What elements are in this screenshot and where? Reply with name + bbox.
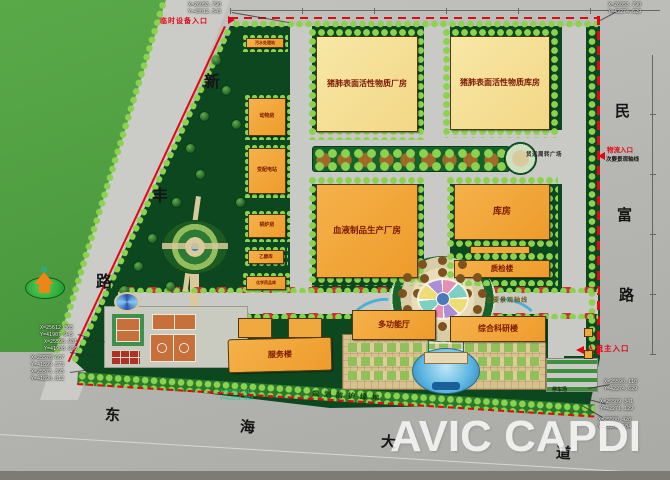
- building-service: 服务楼: [228, 337, 333, 374]
- basketball-courts: [150, 334, 196, 362]
- tree: [134, 262, 143, 271]
- building-surfactant-plant-block: 猪肺表面活性物质厂房: [308, 28, 426, 140]
- coord-west-2: X=25598.981Y=41908.956: [44, 339, 77, 352]
- watermark: AVIC CAPDI: [390, 412, 641, 462]
- building-sewage-station: 污水处理站: [246, 38, 284, 48]
- dimension-line-top: [230, 8, 660, 14]
- tree: [166, 282, 175, 291]
- building-boiler-block: 锅炉房: [244, 210, 290, 242]
- building-surfactant-warehouse: 猪肺表面活性物质库房: [450, 36, 550, 130]
- coord-west-4: X=25573.395Y=41898.812: [31, 369, 64, 382]
- coord-east-1: X=25590.110Y=42274.629: [604, 379, 637, 392]
- building-qc-block: 质检楼: [446, 252, 558, 286]
- red-courts: [112, 350, 140, 364]
- building-chemical-storage: 化学药品库: [246, 276, 286, 290]
- reflecting-pool: [432, 382, 460, 390]
- road-name-donghai-char: 东: [104, 404, 120, 426]
- road-name-xinfeng-char: 路: [96, 268, 112, 292]
- bush-row-site-east-edge: [588, 28, 596, 354]
- coord-east-2: X=25509.341Y=42271.129: [600, 399, 633, 412]
- tree: [232, 120, 241, 129]
- volleyball-courts: [152, 314, 196, 330]
- road-name-minfu-char: 富: [617, 204, 632, 225]
- landscape-strip-cap: [504, 142, 537, 175]
- building-warehouse: 库房: [454, 184, 550, 240]
- building-blood-products-plant: 血液制品生产厂房: [316, 184, 418, 278]
- garden-cross-path: [162, 243, 228, 249]
- gatehouse: [584, 328, 593, 337]
- road-name-minfu-char: 路: [619, 284, 634, 305]
- building-qc: 质检楼: [454, 260, 550, 278]
- dimension-line-right: [650, 55, 656, 355]
- main-axis-label: 主要景观轴线: [486, 295, 528, 304]
- building-warehouse-block: 库房: [446, 176, 558, 248]
- road-name-xinfeng-char: 丰: [152, 182, 168, 206]
- spiral-garden: [114, 292, 140, 312]
- pedestrian-entrance-arrow-icon: [576, 346, 584, 354]
- freight-plaza-label: 货运周转广场: [526, 150, 562, 158]
- building-sewage-block: 污水处理站: [242, 34, 288, 52]
- building-surfactant-warehouse-block: 猪肺表面活性物质库房: [442, 28, 558, 138]
- building-ethanol-block: 乙醇库: [244, 246, 288, 268]
- building-substation-block: 变配电站: [244, 144, 290, 198]
- coord-west-1: X=25612.365Y=41907.945: [40, 325, 73, 338]
- temp-equipment-entrance-label: 临时设备入口: [160, 16, 208, 26]
- tree: [148, 234, 157, 243]
- tree: [196, 170, 205, 179]
- coord-west-3: X=25576.667Y=41899.573: [31, 355, 64, 368]
- building-blood-plant-block: 血液制品生产厂房: [308, 176, 426, 286]
- building-ethanol-storage: 乙醇库: [248, 250, 284, 264]
- logistics-entrance-label: 物流入口: [607, 144, 633, 154]
- tree: [212, 56, 221, 65]
- road-name-xinfeng-char: 新: [204, 68, 220, 92]
- building-chemical-block: 化学药品库: [242, 272, 290, 294]
- tree: [236, 198, 245, 207]
- secondary-axis-label: 次要景观轴线: [606, 155, 639, 163]
- service-building-wing-east: [288, 318, 322, 338]
- tree: [172, 198, 181, 207]
- building-multifunction-hall: 多功能厅: [352, 310, 436, 340]
- site-master-plan: 规划防护绿地 猪肺表面活性物质厂房 猪肺表面活性物质库房 血液制品生产厂房 库房…: [0, 0, 670, 480]
- boundary-red-dashed-top: [230, 17, 598, 19]
- logistics-entrance-arrow-icon: [598, 152, 605, 160]
- building-surfactant-plant: 猪肺表面活性物质厂房: [316, 36, 418, 132]
- coord-top-right: X=26053.790Y=42274.629: [608, 2, 641, 15]
- pedestrian-main-entrance-label: 人流主入口: [587, 343, 630, 354]
- building-boiler-room: 锅炉房: [248, 214, 286, 238]
- tennis-court-surface: [116, 318, 140, 342]
- parking-label: 停车场: [552, 386, 567, 393]
- road-name-minfu-char: 民: [615, 100, 630, 121]
- building-animal-house: 动物房: [248, 98, 286, 136]
- coord-top-left: X=26053.790Y=43012.543: [188, 2, 221, 15]
- frame-bottom-edge: [0, 471, 670, 480]
- building-animal-block: 动物房: [244, 94, 290, 140]
- road-name-donghai-char: 海: [239, 416, 255, 438]
- temp-equipment-entrance-arrow-icon: [228, 16, 235, 24]
- north-arrow-stem: [39, 284, 50, 293]
- tree: [222, 86, 231, 95]
- plaza-center-pool: [436, 292, 450, 306]
- axis-bush-row-north: [118, 287, 598, 293]
- fountain-stage: [424, 352, 468, 364]
- north-arrow-head: [34, 272, 54, 284]
- coord-south-center: X=25547.013Y=42052.893: [220, 389, 253, 402]
- tree: [186, 144, 195, 153]
- building-substation: 变配电站: [248, 148, 286, 194]
- building-research: 综合科研楼: [450, 316, 546, 342]
- service-building-wing-west: [238, 318, 272, 338]
- boundary-red-dashed-east: [597, 16, 600, 360]
- tree: [200, 112, 209, 121]
- landscape-strip: [312, 146, 510, 172]
